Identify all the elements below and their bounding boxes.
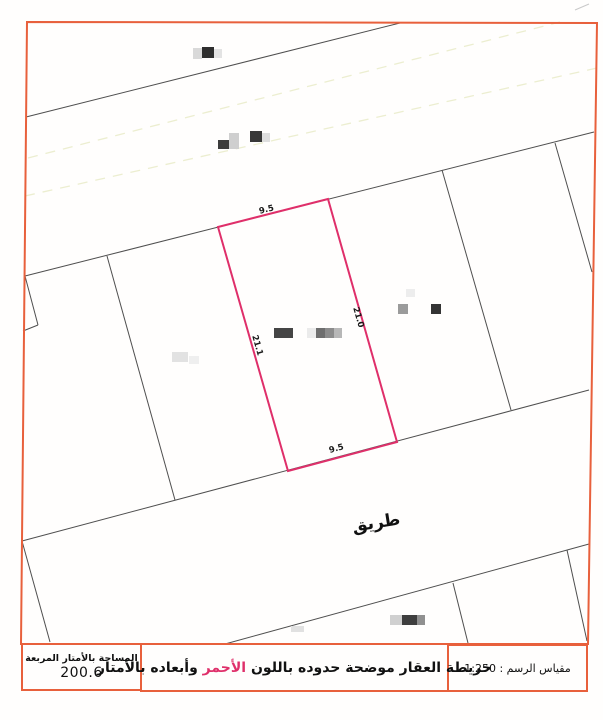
dimension-label-top: 9.5 xyxy=(258,203,275,216)
redaction-block xyxy=(218,140,229,149)
parcel-divider xyxy=(107,256,175,500)
dimension-label-right: 21.0 xyxy=(350,306,365,329)
parcel-divider xyxy=(567,550,587,641)
redaction-block xyxy=(189,356,199,364)
redaction-block xyxy=(390,615,402,625)
road-label: طريق xyxy=(351,509,402,536)
cadastral-map-document: 9.5 21.0 21.1 9.5 طريق المساحة بالأمتار … xyxy=(0,0,603,720)
redaction-block xyxy=(325,328,334,338)
redaction-block xyxy=(402,615,417,625)
parcel-notch-line xyxy=(25,276,38,325)
parcel-divider xyxy=(453,583,468,643)
redaction-block xyxy=(274,328,293,338)
parcel-divider xyxy=(442,170,511,410)
parcel-line-top-diagonal xyxy=(26,23,400,117)
scale-label: مقياس الرسم : xyxy=(499,662,570,675)
dashed-reference-line xyxy=(25,68,597,196)
redaction-block xyxy=(307,328,316,338)
legend-text: خريطة العقار موضحة حدوده باللون الأحمر و… xyxy=(97,660,492,676)
dashed-reference-line xyxy=(28,22,560,158)
parcel-divider xyxy=(555,143,592,272)
redaction-block xyxy=(406,289,415,297)
parcel-divider xyxy=(22,541,50,642)
redaction-block xyxy=(417,615,425,625)
road-south-edge xyxy=(225,544,589,644)
redaction-block xyxy=(172,352,188,362)
redaction-block xyxy=(229,133,239,149)
redaction-block xyxy=(334,328,342,338)
redaction-block xyxy=(431,304,441,314)
scan-artifact-mark xyxy=(575,4,589,10)
legend-prefix: خريطة العقار موضحة حدوده باللون xyxy=(246,660,492,676)
legend-cell: خريطة العقار موضحة حدوده باللون الأحمر و… xyxy=(140,643,449,692)
dimension-label-bottom: 9.5 xyxy=(328,442,345,456)
redaction-block xyxy=(193,48,202,59)
redaction-block xyxy=(398,304,408,314)
legend-suffix: وأبعاده بالأمتار xyxy=(97,660,203,676)
redaction-blocks xyxy=(172,47,441,632)
survey-map-canvas: 9.5 21.0 21.1 9.5 طريق xyxy=(0,0,603,720)
legend-highlight-red-word: الأحمر xyxy=(203,660,246,676)
redaction-block xyxy=(250,131,262,142)
redaction-block xyxy=(316,328,325,338)
redaction-block xyxy=(202,47,214,58)
redaction-block xyxy=(262,133,270,142)
redaction-block xyxy=(291,626,304,632)
redaction-block xyxy=(214,49,222,58)
parcel-notch-line xyxy=(23,325,38,331)
